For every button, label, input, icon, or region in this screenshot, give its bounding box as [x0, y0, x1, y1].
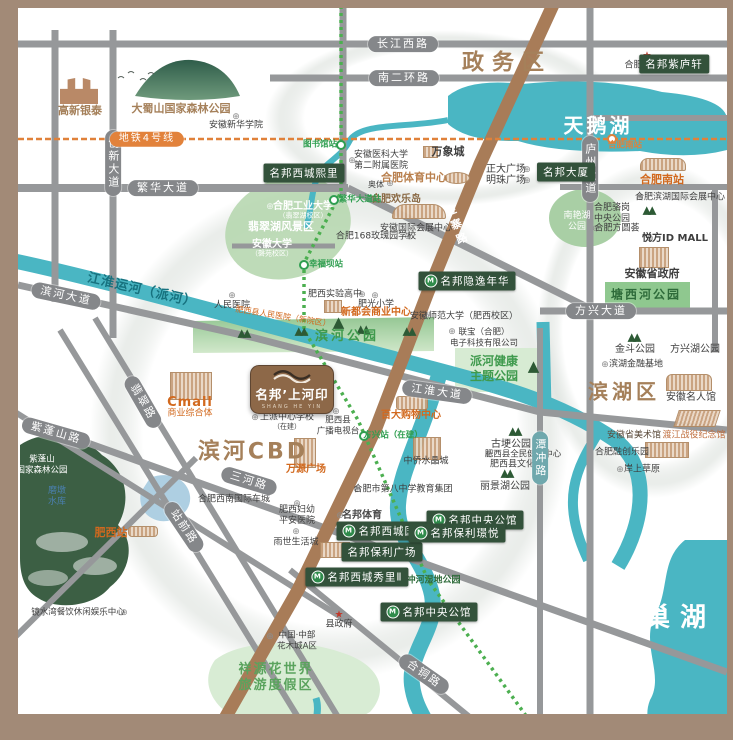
road-pill-fangxingdadao: 方兴大道 [566, 303, 636, 319]
marker-icon-jinrong: ⊕ [601, 360, 609, 370]
poi-binhegongyuan: 滨河公园 [315, 329, 379, 345]
poi-tangxihegongyuan: 塘西河公园 [611, 288, 681, 303]
poi-mingzhuguangchang: 明珠广场 [486, 175, 526, 188]
poi-feixizhan: 肥西站 [95, 526, 128, 540]
poi-anshangcaoyuan: 岸上草原 [624, 464, 660, 475]
metro-icon: M [415, 527, 428, 540]
sketch-feixizhan-train [128, 526, 158, 537]
marker-icon-yushi: ⊕ [292, 527, 300, 537]
sketch-shengzhengfu [639, 247, 669, 268]
tree-paihe: ▲ [528, 357, 537, 375]
lake-label-reservoir: 磨墩水库 [48, 486, 66, 509]
poi-jingshuiwan: 镜水湾餐饮休闲娱乐中心 [31, 608, 125, 619]
poi-binhuhuizhan: 合肥滨湖国际会展中心 [635, 192, 725, 203]
poi-mingrenguan: 安徽名人馆 [666, 392, 716, 405]
poi-guangbo: 肥西县广播电视台 [317, 415, 360, 436]
frame-right [727, 0, 733, 740]
wave-icon [272, 370, 312, 383]
logo-name: 名邦’上河印 [255, 384, 328, 403]
sketch-dujiang [673, 410, 721, 427]
poi-zhongqiao: 中侨水晶城 [403, 456, 448, 467]
metro-station-fanhuadadao: 繁华大道站 [339, 195, 382, 206]
poi-chexicheng: 合肥西南国际车城 [198, 494, 270, 505]
location-map: ▲▲ ▲▲ ▲▲ ▲▲ ▲ ▲▲ ▲▲ ▲▲ ▲▲ ▲ 名邦’上河印 SHANG… [0, 0, 733, 740]
poi-anhuidaxue-sub: （磬苑校区） [251, 250, 293, 259]
dashushan-mountain [135, 60, 240, 100]
station-dot-tushuguan [336, 140, 346, 150]
badge-yinyinianhua: M名邦隐逸年华 [419, 272, 516, 291]
lake-label-tianehu: 天鹅湖 [564, 114, 633, 139]
badge-baolijingyue: M名邦保利璟悦 [409, 524, 506, 543]
poi-dashushan: 大蜀山国家森林公园 [132, 102, 231, 116]
poi-nanyanhu: 南艳湖公园 [563, 211, 590, 234]
metro-station-tushuguan: 图书馆站 [303, 140, 337, 151]
badge-xichengxili: 名邦西城熙里 [264, 164, 345, 183]
chaohu-lake [647, 540, 733, 740]
sketch-tiyuzhongxin [444, 172, 470, 184]
road-pill-nanerhuanlu: 南二环路 [369, 70, 439, 86]
poi-hefeinanzhan: 合肥南站 [640, 173, 684, 187]
poi-mingbangtiyu: 名邦体育 [342, 510, 382, 523]
metro-icon: M [425, 275, 438, 288]
poi-dujiang: 渡江战役纪念馆 [662, 430, 725, 441]
sketch-xinduhui [324, 300, 342, 313]
metro-station-hefeinan: 合肥南站 [608, 141, 642, 152]
poi-zipengshan: 紫蓬山国家森林公园 [16, 454, 67, 475]
sketch-guojihuizhan [392, 204, 446, 219]
badge-zhongyanggongguan2: M名邦中央公馆 [381, 603, 478, 622]
poi-bazhong: 合肥市第八中学教育集团 [353, 484, 452, 495]
poi-xianzhengfu: 县政府 [325, 619, 352, 630]
trees-jindou: ▲▲ [628, 331, 639, 344]
marker-icon-shangpai: ⊕ [251, 413, 259, 423]
poi-aoti: 奥体 [368, 180, 384, 190]
poi-baida: 百大购物中心 [381, 410, 441, 423]
poi-yikeda: 安徽医科大学第二附属医院 [354, 150, 408, 173]
district-label-binhuqu: 滨湖区 [588, 380, 660, 405]
trees-gugeng: ▲▲ [509, 425, 520, 438]
metro-icon: M [343, 525, 356, 538]
district-label-binhecbd: 滨河CBD [198, 438, 308, 466]
trees-binhe-2: ▲▲ [295, 325, 306, 338]
sketch-rongchuang [645, 442, 689, 458]
poi-meishuguan: 安徽省美术馆 [607, 430, 661, 441]
poi-tiyuzhongxin: 合肥体育中心 [381, 171, 447, 185]
poi-fuyou: 肥西妇幼平安医院 [279, 505, 315, 528]
badge-ziluxuan: 名邦紫庐轩 [639, 55, 709, 74]
poi-wanyuanguangchang: 万源广场 [286, 464, 326, 477]
marker-icon-huamucheng: ⊕ [266, 632, 274, 642]
poi-luogang: 合肥骆岗中央公园 [594, 203, 630, 226]
lake-label-chaohu: 巢湖 [644, 602, 716, 635]
trees-binhe-4: ▲▲ [403, 325, 414, 338]
poi-binhujinrongjidi: 滨湖金融基地 [609, 359, 663, 370]
poi-rongchuangleyuan: 合肥融创乐园 [595, 447, 649, 458]
poi-shiyangaozhong: 肥西实验高中 [308, 289, 362, 300]
poi-xiangyuan: 祥源花世界旅游度假区 [238, 662, 313, 695]
poi-yushi: 雨世生活城 [273, 537, 318, 548]
frame-top [0, 0, 733, 8]
metro-icon: M [311, 571, 324, 584]
poi-lianbao: 联宝（合肥）电子科技有限公司 [450, 327, 518, 348]
station-dot-xingfuba [299, 260, 309, 270]
badge-daxia: 名邦大厦 [537, 163, 595, 182]
poi-jindougongyuan: 金斗公园 [615, 344, 655, 357]
poi-huamucheng: 中国·中部花木城A区 [277, 630, 317, 651]
badge-xichengxiuli2: M名邦西城秀里Ⅱ [305, 568, 408, 587]
sketch-hefeinanzhan [640, 158, 686, 171]
poi-paihe-park: 派河健康主题公园 [470, 354, 518, 384]
trees-luogang: ▲▲ [643, 204, 654, 217]
road-pill-changjiangxilu: 长江西路 [368, 36, 438, 52]
marker-icon-anshang: ⊕ [616, 465, 624, 475]
logo-plaque: 名邦’上河印 SHANG HE YIN [250, 365, 334, 414]
metro-icon: M [387, 606, 400, 619]
metro-station-fangxing: 方兴站（在建） [363, 431, 423, 442]
poi-shengzhengfu: 安徽省政府 [625, 267, 680, 281]
station-dot-fanhuadadao [329, 195, 339, 205]
poi-yuefangidmall: 悦方ID MALL [642, 233, 708, 246]
poi-fangyuanhui: 合肥方圆荟 [594, 223, 639, 234]
poi-anshida: 安徽师范大学（肥西校区） [410, 311, 518, 322]
tanchong-river-north [543, 322, 545, 408]
poi-fangxinghugongyuan: 方兴湖公园 [670, 344, 720, 357]
poi-hegongda-sub: （翡翠湖校区） [279, 212, 328, 221]
road-pill-tanchonglu: 潭冲路 [532, 432, 548, 485]
poi-rose168: 合肥168玫瑰园学校 [336, 231, 416, 242]
poi-feicuihu: 翡翠湖风景区 [248, 220, 314, 234]
poi-gaoxinyintai: 高新银泰 [58, 104, 102, 118]
poi-wanxiangcheng: 万象城 [432, 145, 465, 159]
sketch-mingrenguan [666, 374, 712, 391]
badge-baoliguangchang: 名邦保利广场 [342, 543, 423, 562]
poi-shangpaixuexiao-sub: （在建） [273, 423, 301, 432]
trees-binhe-1: ▲▲ [238, 327, 249, 340]
poi-xinduhui: 新都会商业中心 [341, 307, 411, 320]
metro-station-xingfuba: 幸福坝站 [309, 260, 343, 271]
frame-left [0, 0, 18, 740]
poi-cmall-sub: 商业综合体 [167, 408, 212, 419]
frame-bottom [0, 714, 733, 740]
metro-line4-pill: 地铁4号线 [110, 132, 184, 147]
poi-lijinghu: 丽景湖公园 [480, 481, 530, 494]
logo-subtitle: SHANG HE YIN [262, 404, 322, 410]
road-pill-fanhuadadao: 繁华大道 [128, 180, 198, 196]
district-label-zhengwuqu: 政务区 [462, 49, 552, 77]
poi-xinhuaxueyuan: 安徽新华学院 [209, 120, 263, 131]
